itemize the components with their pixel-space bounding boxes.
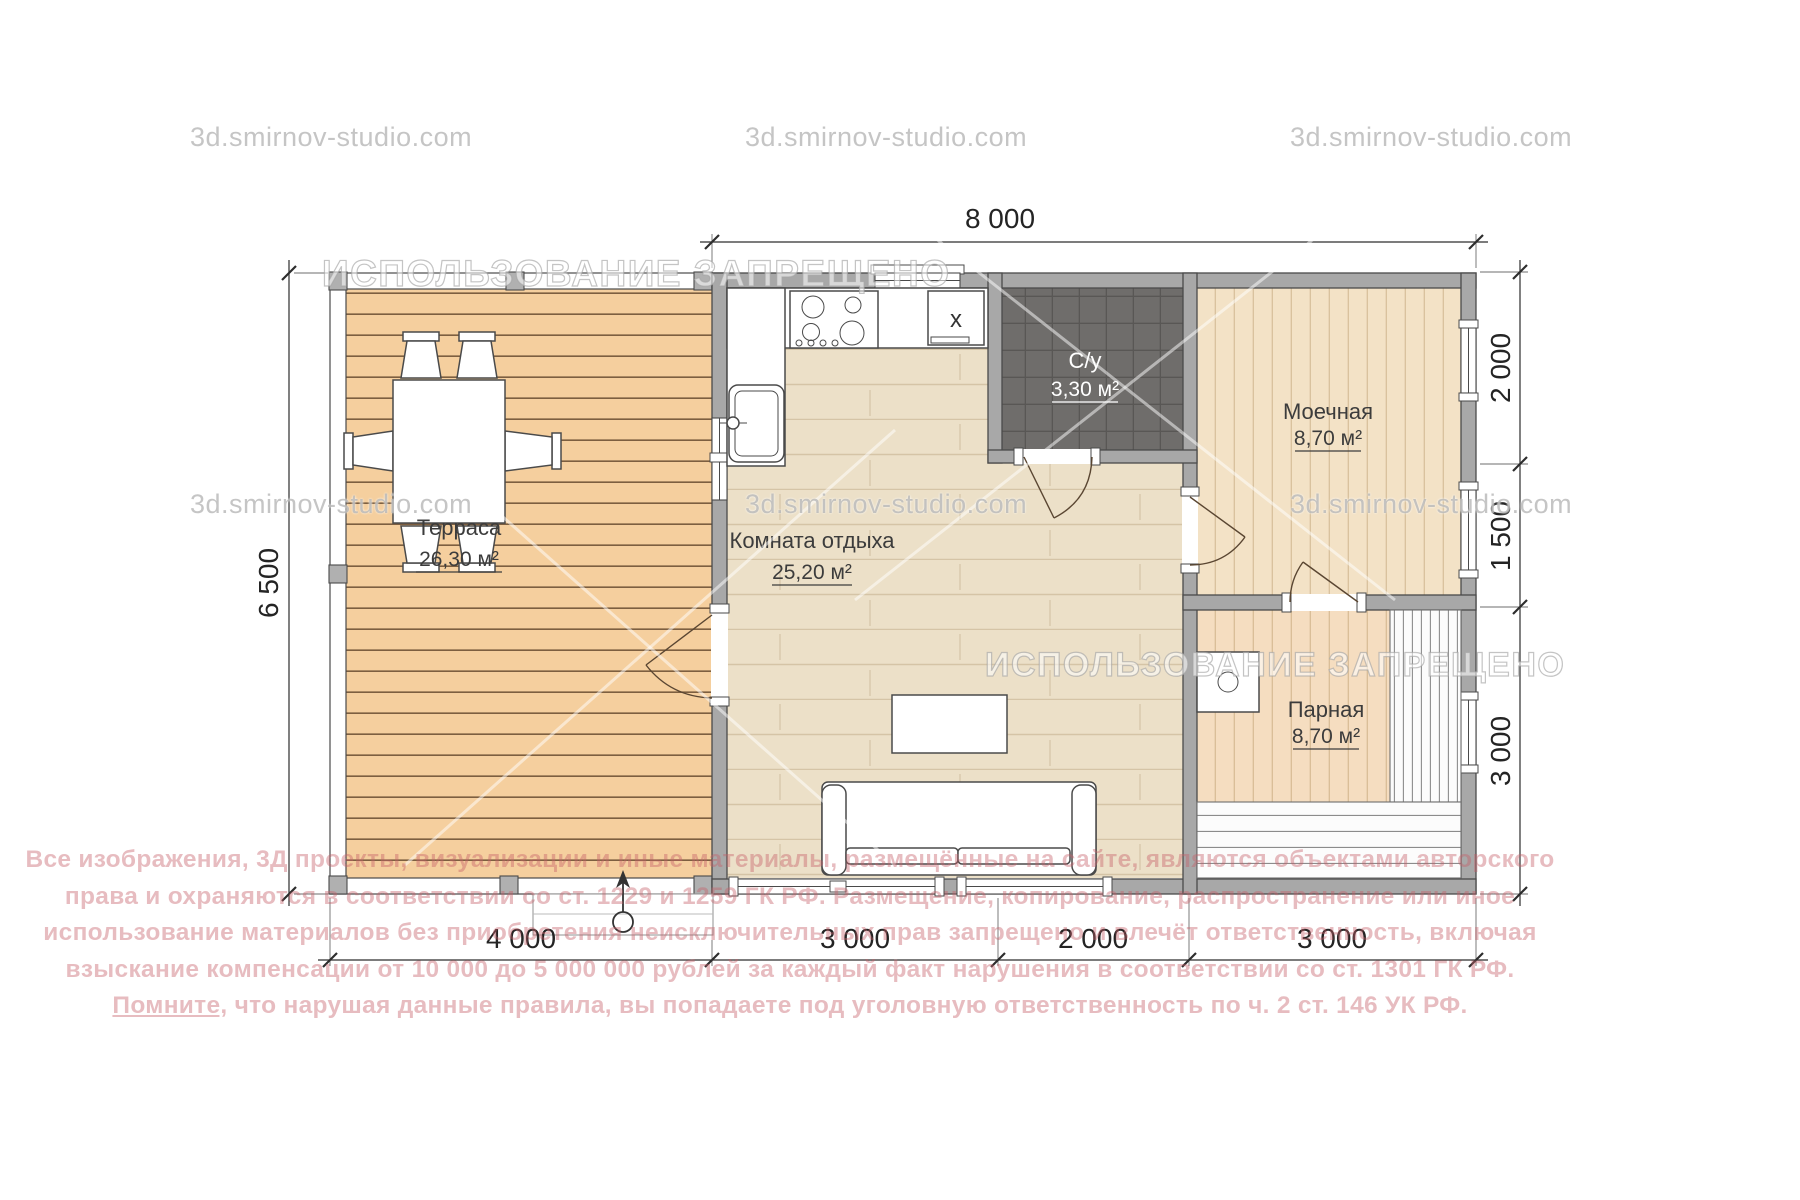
copyright-line5-lead: Помните,: [112, 992, 227, 1019]
copyright-line: использование материалов без приобретени…: [0, 915, 1580, 952]
washroom-area: 8,70 м²: [1294, 427, 1362, 450]
fridge-icon: x: [928, 291, 984, 345]
chair: [401, 332, 441, 378]
watermark-site: 3d.smirnov-studio.com: [745, 122, 1027, 153]
bench-side: [1390, 610, 1461, 802]
washroom-name: Моечная: [1283, 399, 1373, 424]
watermark-site: 3d.smirnov-studio.com: [1290, 122, 1572, 153]
steam-area: 8,70 м²: [1292, 725, 1360, 748]
coffee-table: [892, 695, 1007, 753]
watermark-site: 3d.smirnov-studio.com: [745, 489, 1027, 520]
dimension-right: 2 000 1 500 3 000: [1480, 260, 1528, 906]
copyright-line: взыскание компенсации от 10 000 до 5 000…: [0, 952, 1580, 989]
lounge-area: 25,20 м²: [772, 561, 852, 584]
fridge-label: x: [950, 306, 962, 333]
steam-name: Парная: [1288, 697, 1365, 722]
watermark-site: 3d.smirnov-studio.com: [1290, 489, 1572, 520]
window-right-3: [1459, 692, 1478, 773]
copyright-line: Помните, что нарушая данные правила, вы …: [0, 988, 1580, 1025]
su-area: 3,30 м²: [1051, 378, 1119, 401]
copyright-line: права и охраняются в соответствии со ст.…: [0, 879, 1580, 916]
su-left-wall: [988, 273, 1002, 463]
window-right-1: [1459, 320, 1478, 401]
floor-plan-page: x: [0, 0, 1800, 1200]
railing-post: [329, 565, 347, 583]
dim-right-label-1: 2 000: [1485, 333, 1516, 403]
chair: [457, 332, 497, 378]
dim-left-label: 6 500: [253, 548, 284, 618]
watermark-banner: ИСПОЛЬЗОВАНИЕ ЗАПРЕЩЕНО: [322, 253, 951, 295]
chair: [344, 431, 393, 471]
sink-icon: [719, 385, 784, 462]
dim-top-label: 8 000: [965, 203, 1035, 234]
copyright-line: Все изображения, 3Д проекты, визуализаци…: [0, 842, 1580, 879]
watermark-banner: ИСПОЛЬЗОВАНИЕ ЗАПРЕЩЕНО: [985, 646, 1565, 685]
copyright-notice: Все изображения, 3Д проекты, визуализаци…: [0, 842, 1580, 1025]
middle-vertical-wall: [1183, 273, 1197, 894]
watermark-site: 3d.smirnov-studio.com: [190, 122, 472, 153]
window-left-wall: [710, 418, 729, 500]
stove-icon: [790, 291, 878, 348]
chair: [505, 431, 561, 471]
dim-right-label-3: 3 000: [1485, 716, 1516, 786]
terrace-area: 26,30 м²: [419, 548, 499, 571]
dimension-left: 6 500: [253, 260, 328, 906]
lounge-name: Комната отдыха: [730, 528, 896, 553]
watermark-site: 3d.smirnov-studio.com: [190, 489, 472, 520]
copyright-line5-rest: что нарушая данные правила, вы попадаете…: [228, 992, 1468, 1019]
su-name: С/у: [1069, 348, 1102, 373]
